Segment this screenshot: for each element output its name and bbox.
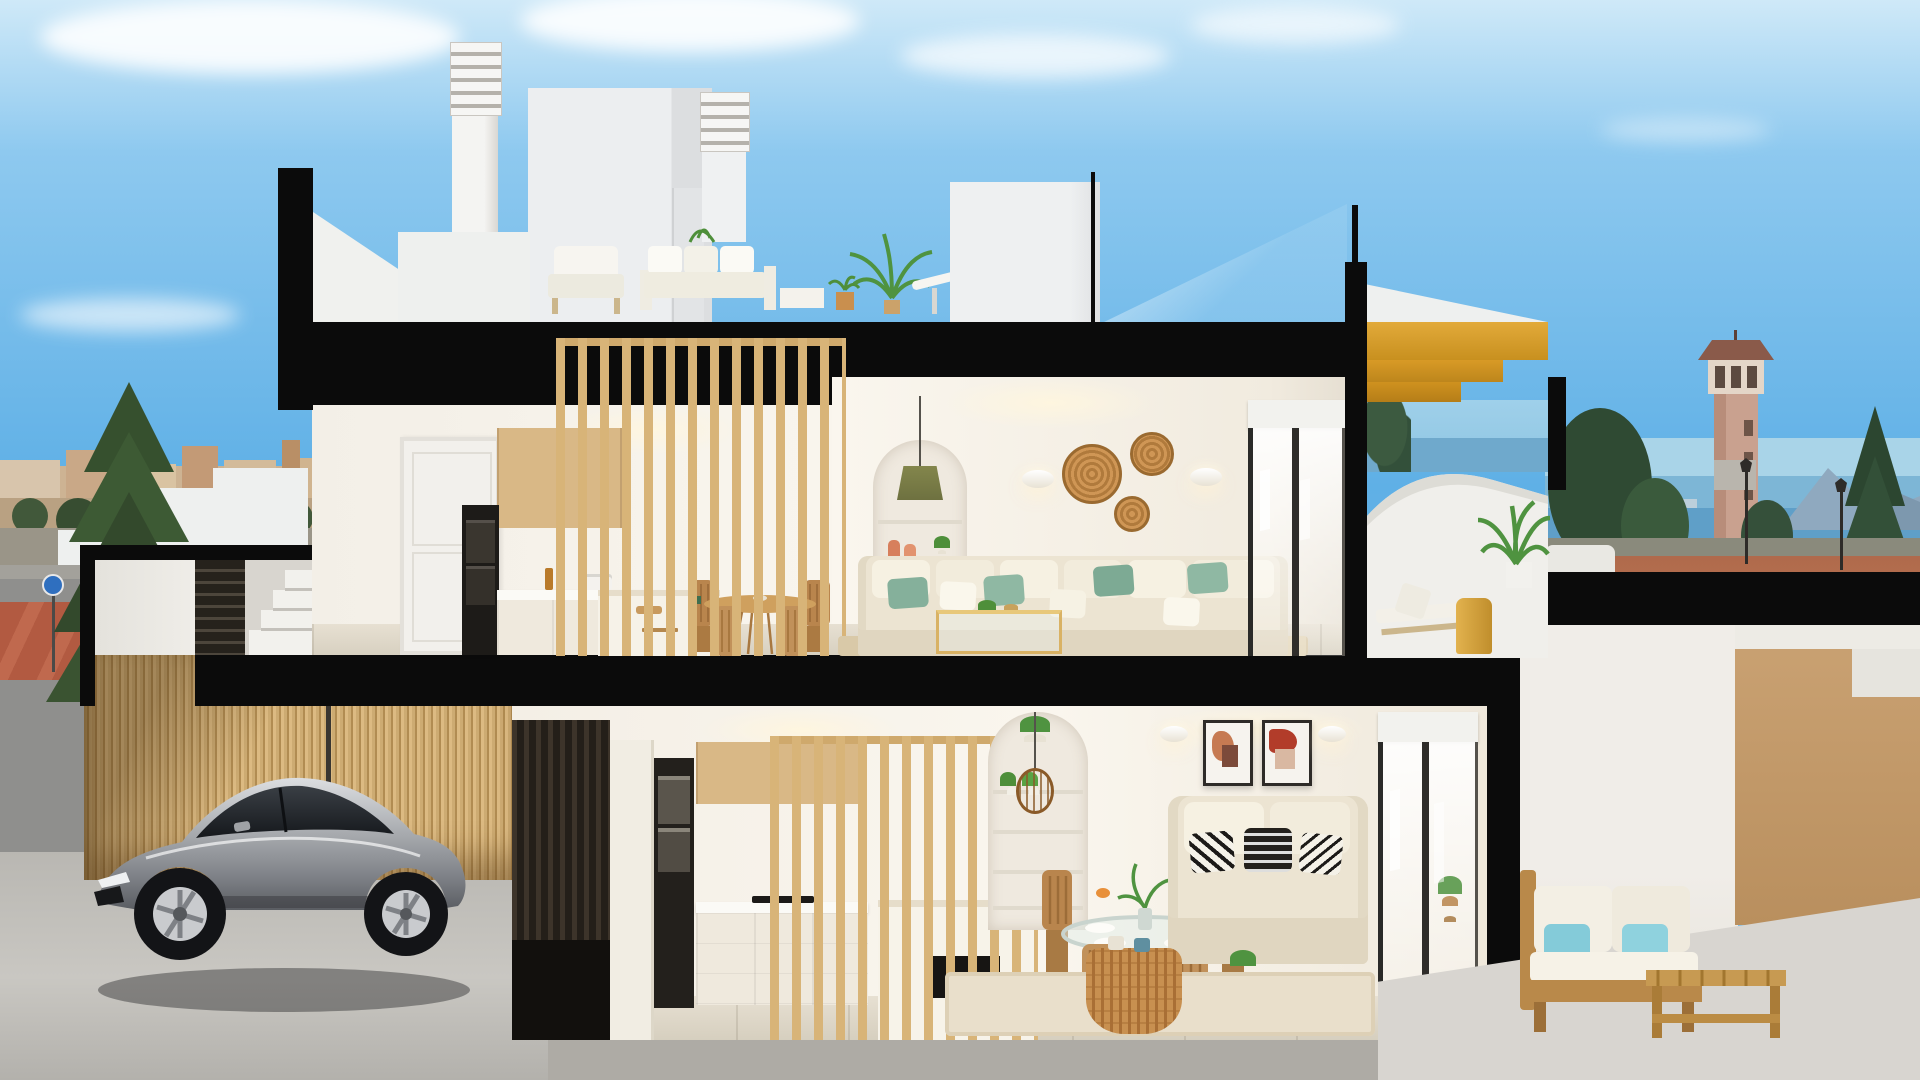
wall-sconce <box>1190 468 1222 486</box>
art-shape <box>1275 749 1295 769</box>
rattan-wall-plate <box>1062 444 1122 504</box>
cut-entry-header <box>80 545 312 560</box>
patio-slat-table <box>1646 948 1786 1044</box>
steel-oven <box>658 776 690 824</box>
oven-front <box>466 566 495 605</box>
bw-pillow <box>1298 832 1344 876</box>
ceiling-glow <box>940 377 1160 429</box>
planter-wall <box>1852 649 1920 697</box>
chimney-right-cap <box>700 92 750 152</box>
wood-stair-step <box>1367 360 1503 382</box>
cloud <box>40 0 460 74</box>
cloud <box>1190 6 1400 44</box>
coffee-table-decor <box>978 600 996 610</box>
rattan-wall-plate <box>1114 496 1150 532</box>
roof-terrace-furniture <box>540 204 960 324</box>
balustrade-post <box>1091 172 1095 324</box>
low-wall <box>1735 625 1920 649</box>
niche-plants <box>1000 772 1016 786</box>
roller-blind-box <box>1248 400 1345 428</box>
bw-pillow <box>1188 830 1235 874</box>
entry-steps <box>245 560 312 655</box>
chimney-left-body <box>452 112 498 234</box>
low-white-wall <box>1545 545 1615 573</box>
cloud <box>900 34 1170 78</box>
cut-column-left <box>278 168 313 410</box>
brass-drum-table <box>1456 598 1492 654</box>
oven-front <box>466 520 495 563</box>
glass-reflection <box>1260 469 1270 531</box>
lamp-post <box>1840 488 1843 570</box>
door-mullion <box>1292 428 1299 656</box>
bw-pillow <box>1244 828 1292 872</box>
cloud <box>20 298 240 332</box>
wall-sconce <box>1022 470 1054 488</box>
sofa-white-pillow <box>939 581 976 611</box>
cloud <box>1600 118 1770 142</box>
cut-post <box>1352 205 1358 265</box>
entry-wall <box>95 560 195 655</box>
art-print <box>1262 720 1312 786</box>
pendant-wire <box>919 396 921 468</box>
architectural-render <box>0 0 1920 1080</box>
glass-plant <box>1438 876 1462 894</box>
pendant-wire <box>1034 712 1036 770</box>
rattan-pendant <box>1016 768 1054 814</box>
pendant-lamp-olive <box>897 466 943 500</box>
niche-shelf <box>878 520 962 524</box>
living-roof-volume <box>950 182 1100 324</box>
lamp-post <box>1745 468 1748 564</box>
wood-stair-step <box>1367 322 1548 360</box>
slat-screen <box>556 338 846 656</box>
roof-parapet-band <box>398 232 530 324</box>
oil-bottles <box>545 568 553 590</box>
cut-boundary-bar <box>1520 572 1920 625</box>
sofa2-plant <box>1230 950 1256 966</box>
art-shape <box>1222 745 1238 767</box>
kitchen2-tall-cabinet <box>610 740 654 1040</box>
table-decor <box>1108 936 1124 950</box>
glass-reflection <box>1390 789 1400 871</box>
cut-column-right-upper <box>1345 262 1367 658</box>
wood-stair-step <box>1367 382 1461 402</box>
cut-roof-slab <box>832 322 1347 377</box>
garage-shadow <box>512 940 610 1040</box>
wall-sconce <box>1160 726 1188 742</box>
rattan-drum-table <box>1086 948 1182 1034</box>
wall-sconce <box>1318 726 1346 742</box>
roller-blind-box <box>1378 712 1478 742</box>
terrace-palm <box>1472 462 1552 592</box>
niche-plant <box>934 536 950 548</box>
art-print <box>1203 720 1253 786</box>
steel-oven <box>658 828 690 872</box>
rattan-wall-plate <box>1130 432 1174 476</box>
sports-car <box>84 680 479 1025</box>
chimney-left-cap <box>450 42 502 116</box>
coffee-table-glass <box>936 610 1062 654</box>
sofa-green-pillow <box>887 577 929 610</box>
entry-louver-gate <box>195 560 245 655</box>
